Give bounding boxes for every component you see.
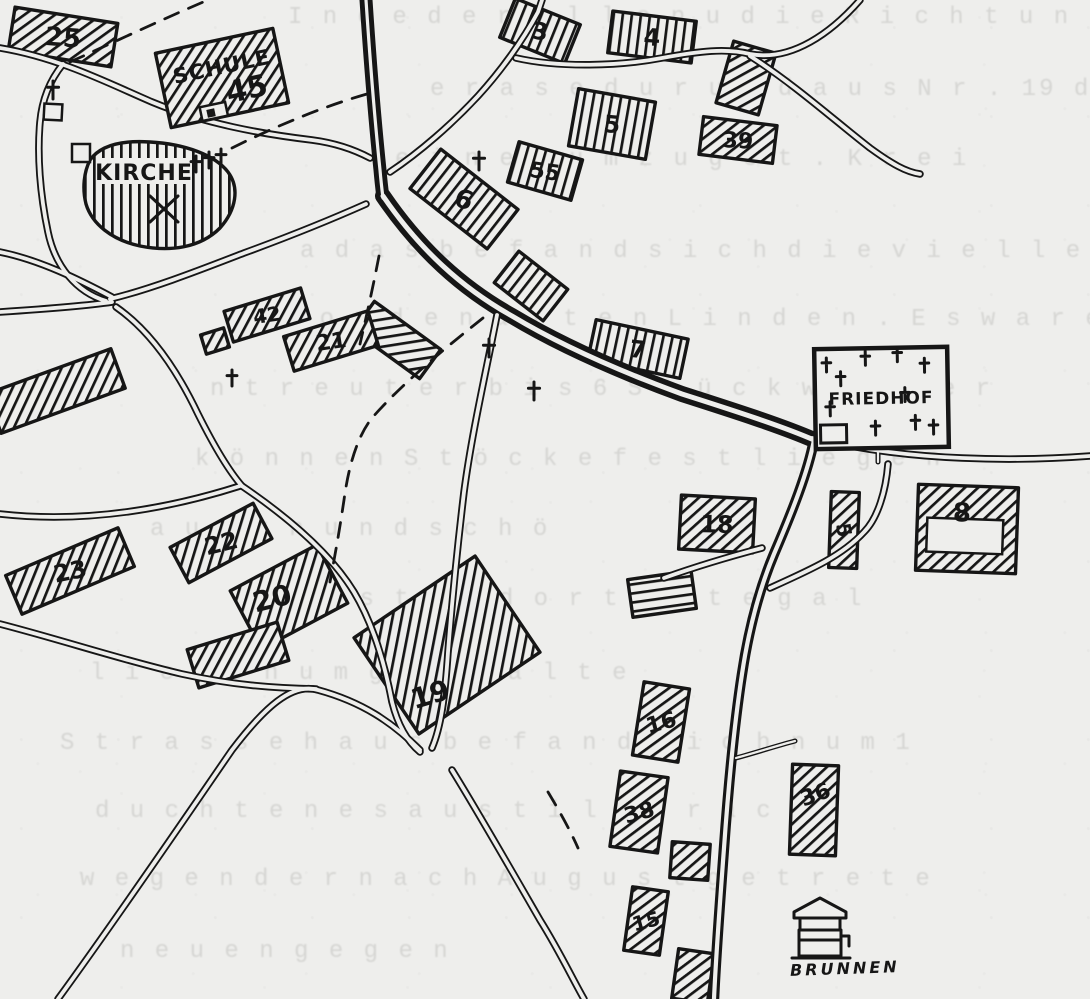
road-southeast	[452, 770, 584, 999]
well-body	[799, 930, 841, 956]
building-footprint	[201, 328, 230, 354]
building-label: 7	[628, 335, 648, 365]
building-36	[789, 764, 838, 856]
building-footprint	[672, 949, 715, 999]
building-label: 18	[700, 510, 734, 539]
chapel-symbol	[44, 104, 63, 121]
building-label: 21	[314, 328, 348, 357]
cross-symbol	[227, 370, 237, 386]
building-label: 55	[528, 158, 562, 187]
road-23-top	[0, 486, 240, 517]
road-stub-36	[736, 741, 795, 758]
building-label: 25	[44, 22, 82, 55]
scanned-village-map-page: I n d e d e r o l l e n u d i e R i c h …	[0, 0, 1090, 999]
schule-building: SCHULE 45	[155, 28, 288, 127]
building-label: 8	[953, 498, 972, 528]
dashed-paths	[70, 0, 578, 848]
brunnen-label: BRUNNEN	[790, 957, 900, 980]
road-southwest	[58, 689, 420, 999]
brunnen-well: BRUNNEN	[790, 898, 900, 980]
building	[201, 328, 230, 354]
building	[670, 842, 710, 881]
building-footprint	[0, 349, 125, 434]
village-map: SCHULE 45 KIRCHE FRIEDHOF BRUNNEN	[0, 0, 1090, 999]
building-label: 4	[643, 23, 661, 52]
main-street	[383, 196, 814, 440]
building	[672, 949, 715, 999]
building-footprint	[789, 764, 838, 856]
building-label: 5	[602, 110, 621, 139]
dashed-southeast	[548, 792, 578, 848]
kirche-label: KIRCHE	[95, 161, 193, 186]
cross-symbol	[473, 152, 484, 170]
friedhof-label: FRIEDHOF	[828, 388, 933, 410]
building-footprint	[670, 842, 710, 881]
friedhof-cemetery: FRIEDHOF	[814, 347, 949, 449]
well-roof	[794, 898, 846, 918]
cross-symbol	[528, 382, 539, 400]
well-posts	[800, 918, 840, 930]
main-street	[383, 196, 814, 440]
building	[0, 349, 125, 434]
building-label: 39	[722, 128, 754, 155]
building-label: 42	[251, 301, 282, 329]
